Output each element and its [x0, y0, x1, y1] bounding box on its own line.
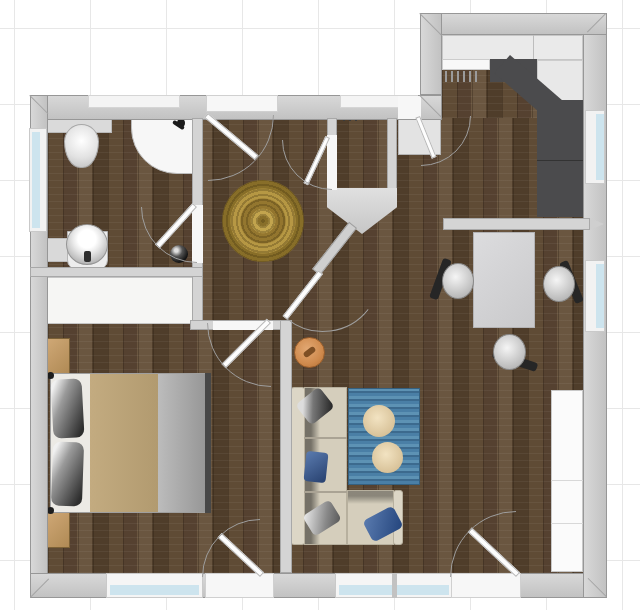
- window-top-1: [88, 95, 180, 108]
- bed-pillow-2: [51, 441, 84, 506]
- wall-kitchen-top: [420, 13, 607, 35]
- sofa-seam-2: [304, 491, 347, 493]
- window-living-mullion: [392, 573, 397, 598]
- nightstand-top: [46, 338, 70, 374]
- floorplan-canvas: [0, 0, 640, 610]
- sideboard-divider-1: [551, 480, 583, 481]
- bed-frame-edge: [205, 373, 211, 513]
- sideboard: [551, 390, 583, 572]
- sideboard-divider-2: [551, 523, 583, 524]
- bed-blanket-beige: [90, 374, 160, 512]
- hall-round-rug: [222, 180, 304, 262]
- kitchen-counter-dark-right: [537, 100, 583, 217]
- kitchen-cabinet-divider: [533, 35, 534, 60]
- sofa-pillow-blue-1: [303, 451, 328, 483]
- bed-knob-bottom: [47, 507, 54, 514]
- dining-chair-bottom-seat: [493, 334, 526, 370]
- pouf-1: [363, 405, 395, 437]
- window-right-top-glass: [596, 114, 604, 180]
- bed-knob-top: [47, 372, 54, 379]
- sink-tap: [84, 251, 91, 262]
- wall-hall-closet-right: [387, 118, 397, 190]
- kitchen-sink-drainer: [445, 71, 479, 82]
- entrance-door-opening: [206, 95, 278, 112]
- kitchen-sink-counter: [442, 59, 490, 70]
- window-left-glass: [32, 132, 40, 228]
- wall-dining: [443, 218, 590, 230]
- dining-table: [473, 232, 535, 328]
- dining-chair-left-seat: [442, 263, 474, 299]
- wall-bedroom-living: [280, 320, 292, 573]
- dining-chair-right-seat: [543, 266, 575, 302]
- pouf-2: [372, 442, 403, 473]
- bed-blanket-gray: [158, 374, 205, 512]
- window-right-mid-glass: [596, 264, 604, 328]
- window-bedroom-glass: [110, 585, 199, 595]
- wall-bath-bedroom: [30, 267, 203, 277]
- kitchen-door-opening: [398, 96, 421, 119]
- wardrobe: [46, 277, 194, 324]
- bed-pillow-1: [50, 378, 84, 439]
- sofa-seam-1: [304, 437, 347, 439]
- kitchen-counter-seam: [537, 160, 583, 161]
- nightstand-bottom: [46, 511, 70, 548]
